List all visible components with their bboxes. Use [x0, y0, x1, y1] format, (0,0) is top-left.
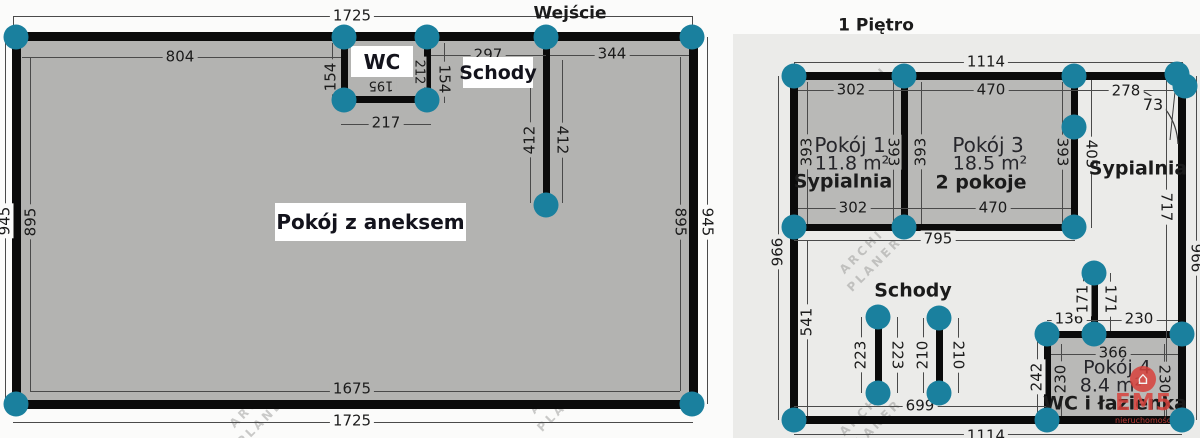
corner-node: [1082, 322, 1107, 347]
dim-label: 210: [915, 338, 932, 373]
dim-label: 223: [853, 338, 870, 373]
dim-label: 154: [436, 62, 453, 97]
dim-label: 393: [913, 135, 930, 170]
dim-label: 344: [595, 46, 630, 63]
corner-node: [4, 392, 29, 417]
corner-node: [1082, 261, 1107, 286]
floorplan-image: ARCHIPLANER ARCHIPLANER ARCHIPLANER ARCH…: [0, 0, 1200, 438]
dim-label: 302: [836, 200, 871, 217]
room3-tag: 2 pokoje: [935, 174, 1026, 193]
corner-node: [534, 25, 559, 50]
wc-label: WC: [351, 46, 413, 77]
dim-label: 895: [672, 205, 689, 240]
corner-node: [1062, 215, 1087, 240]
corner-node: [680, 25, 705, 50]
corner-node: [415, 25, 440, 50]
corner-node: [1170, 322, 1195, 347]
main-room-label: Pokój z aneksem: [275, 203, 466, 241]
dim-label: 73: [1140, 96, 1166, 114]
wall-room3-right: [1071, 80, 1078, 231]
dim-label: 1114: [964, 428, 1008, 438]
dim-label: 470: [974, 82, 1009, 99]
dim-label: 1725: [330, 8, 374, 25]
dim-label: 412: [554, 123, 571, 158]
dim-label: 1725: [330, 413, 374, 430]
dim-label: 210: [950, 338, 967, 373]
corner-node: [332, 88, 357, 113]
floor-title: 1 Piętro: [838, 18, 914, 35]
dim-label: 541: [799, 305, 816, 340]
dim-label: 212: [412, 57, 427, 88]
corner-node: [4, 25, 29, 50]
corner-node: [866, 381, 891, 406]
stairs-label-left-plan: Schody: [463, 57, 533, 88]
corner-node: [782, 408, 807, 433]
dim-label: 717: [1158, 190, 1175, 225]
dim-label: 966: [1188, 241, 1200, 276]
dim-label: 795: [921, 231, 956, 248]
room1-tag: Sypialnia: [794, 173, 892, 192]
bedroom-label: Sypialnia: [1089, 160, 1187, 179]
corner-node: [927, 306, 952, 331]
dim-label: 1675: [330, 381, 374, 398]
corner-node: [1035, 322, 1060, 347]
dim-label: 230: [1122, 311, 1157, 328]
dim-label: 804: [163, 49, 198, 66]
corner-node: [1170, 408, 1195, 433]
dim-label: 412: [522, 123, 539, 158]
entrance-label: Wejście: [533, 6, 606, 23]
dim-label: 895: [23, 205, 40, 240]
corner-node: [1062, 64, 1087, 89]
corner-node: [927, 381, 952, 406]
corner-node: [782, 215, 807, 240]
ems-logo: ⌂ EM5 nieruchomości: [1115, 366, 1171, 426]
dim-label: 171: [1102, 282, 1119, 317]
dim-label: 171: [1075, 282, 1092, 317]
corner-node: [866, 305, 891, 330]
right-plan-wall-left: [790, 72, 798, 424]
corner-node: [534, 193, 559, 218]
corner-node: [892, 215, 917, 240]
corner-node: [680, 392, 705, 417]
dim-label: 217: [369, 115, 404, 132]
room4-wall-top: [1044, 331, 1186, 338]
corner-node: [892, 64, 917, 89]
corner-node: [1062, 115, 1087, 140]
corner-node: [332, 25, 357, 50]
dim-label: 966: [770, 235, 787, 270]
left-plan-stairs-wall: [543, 41, 550, 207]
dim-label: 302: [834, 82, 869, 99]
dim-label: 223: [889, 338, 906, 373]
ems-logo-icon: ⌂: [1130, 366, 1156, 392]
left-plan-wall-bottom: [12, 400, 698, 409]
ems-logo-name: EM5: [1115, 392, 1171, 415]
dim-label: 470: [976, 200, 1011, 217]
corner-node: [1035, 408, 1060, 433]
dim-label: 278: [1109, 83, 1144, 100]
corner-node: [415, 88, 440, 113]
dim-label: 945: [699, 205, 716, 240]
corner-node: [782, 64, 807, 89]
dim-label: 393: [1054, 135, 1071, 170]
corner-node: [1173, 74, 1198, 99]
stairs-label-right-plan: Schody: [874, 282, 952, 301]
ems-logo-subtitle: nieruchomości: [1115, 415, 1171, 426]
dim-label: 1114: [964, 54, 1008, 71]
dim-label: 393: [799, 135, 816, 170]
dim-label: 230: [1053, 362, 1070, 397]
dim-label: 195: [366, 78, 397, 93]
dim-label: 945: [0, 204, 14, 239]
left-plan-wall-right: [689, 32, 698, 409]
dim-label: 242: [1029, 360, 1046, 395]
